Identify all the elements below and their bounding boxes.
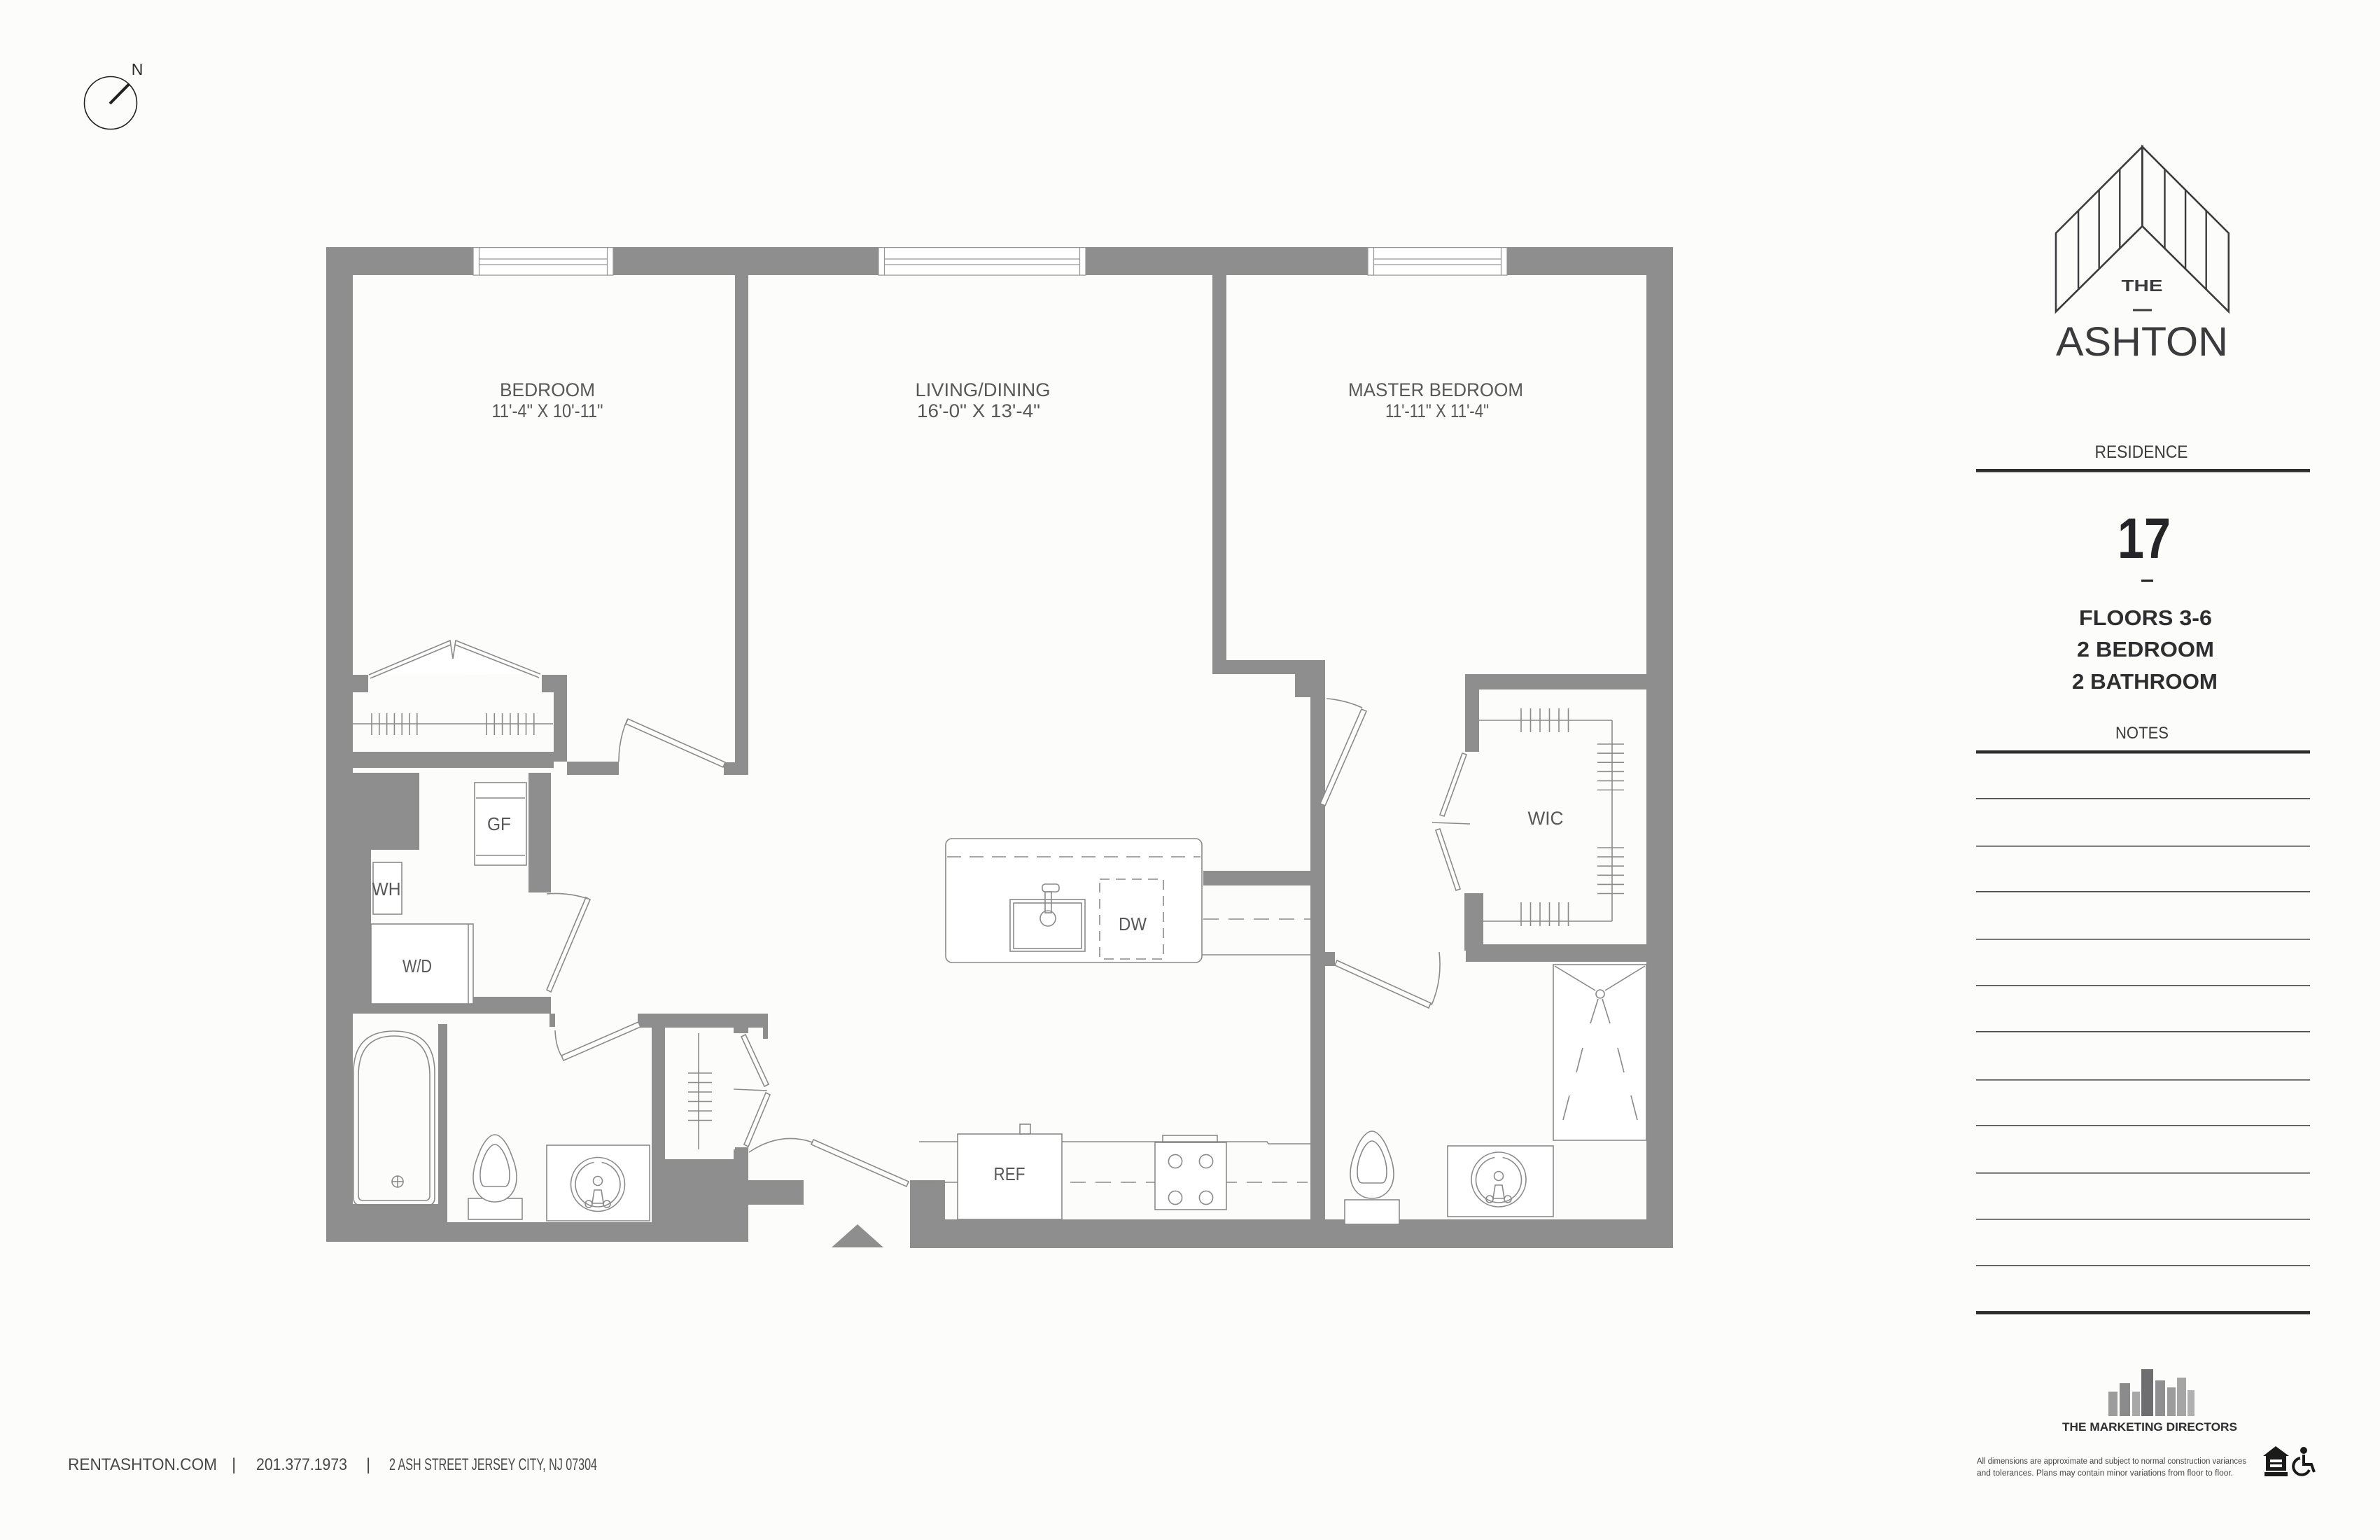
svg-text:NOTES: NOTES	[2115, 724, 2169, 743]
svg-text:FLOORS 3-6: FLOORS 3-6	[2079, 605, 2212, 630]
svg-text:WIC: WIC	[1528, 808, 1564, 829]
svg-text:and tolerances. Plans may cont: and tolerances. Plans may contain minor …	[1977, 1469, 2233, 1478]
svg-text:16'-0" X 13'-4": 16'-0" X 13'-4"	[917, 400, 1040, 421]
svg-text:201.377.1973: 201.377.1973	[256, 1455, 347, 1474]
svg-text:GF: GF	[487, 813, 511, 834]
svg-text:DW: DW	[1119, 913, 1147, 934]
svg-text:LIVING/DINING: LIVING/DINING	[916, 379, 1051, 400]
svg-text:THE MARKETING DIRECTORS: THE MARKETING DIRECTORS	[2062, 1421, 2237, 1434]
svg-text:17: 17	[2117, 507, 2171, 570]
svg-text:W/D: W/D	[402, 955, 432, 976]
svg-text:THE: THE	[2122, 276, 2163, 295]
svg-text:|: |	[366, 1455, 370, 1474]
svg-text:REF: REF	[994, 1163, 1025, 1184]
svg-text:|: |	[232, 1455, 236, 1474]
svg-text:2 BEDROOM: 2 BEDROOM	[2077, 637, 2214, 661]
svg-text:11'-4" X 10'-11": 11'-4" X 10'-11"	[492, 400, 603, 421]
svg-text:MASTER BEDROOM: MASTER BEDROOM	[1348, 379, 1523, 400]
svg-text:2 BATHROOM: 2 BATHROOM	[2072, 669, 2218, 694]
svg-text:RENTASHTON.COM: RENTASHTON.COM	[68, 1455, 217, 1474]
svg-text:RESIDENCE: RESIDENCE	[2095, 442, 2188, 462]
svg-text:WH: WH	[372, 878, 401, 899]
svg-text:N: N	[132, 60, 143, 78]
svg-text:ASHTON: ASHTON	[2056, 319, 2228, 365]
svg-text:All dimensions are approximate: All dimensions are approximate and subje…	[1977, 1457, 2246, 1466]
svg-text:11'-11" X 11'-4": 11'-11" X 11'-4"	[1385, 400, 1489, 421]
svg-text:2 ASH STREET JERSEY CITY, NJ 0: 2 ASH STREET JERSEY CITY, NJ 07304	[389, 1455, 597, 1474]
svg-text:BEDROOM: BEDROOM	[500, 379, 595, 400]
